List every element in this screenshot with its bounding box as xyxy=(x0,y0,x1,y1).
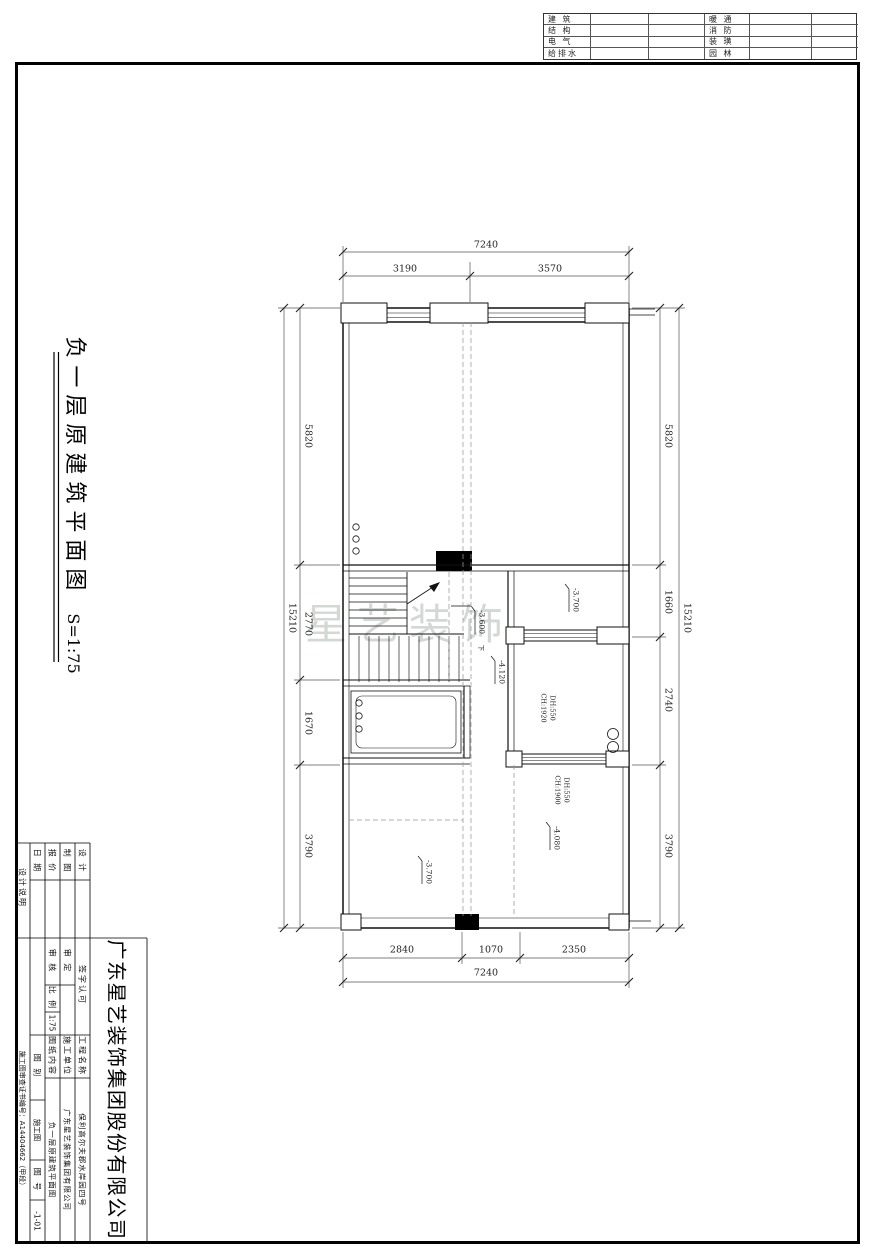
tb-cert-note: 施工图审查证书编号：A14404662（甲段） xyxy=(17,1051,27,1189)
dim-top-overall: 7240 xyxy=(474,240,498,251)
dim-bottom-seg-a: 2840 xyxy=(390,945,414,956)
elevation-label: -4.080 xyxy=(553,826,562,850)
consult-cell xyxy=(812,37,858,48)
dim-bottom-seg-b: 1070 xyxy=(479,945,503,956)
elevation-label: -3.700 xyxy=(425,860,434,884)
consult-cell xyxy=(750,25,812,36)
door-size-label: DH:550 CH:1920 xyxy=(540,693,557,722)
elevation-label: -3.600 xyxy=(478,610,487,634)
tb-type-value: 施工图 xyxy=(32,1119,43,1142)
dim-top-seg-b: 3570 xyxy=(538,264,562,275)
consult-label: 给排水 xyxy=(544,48,591,59)
dim-bottom-overall: 7240 xyxy=(474,968,498,979)
tb-side-note: 设计说明 xyxy=(17,868,28,908)
tb-design-label: 设 计 xyxy=(77,849,88,874)
consult-cell xyxy=(591,25,649,36)
door-ch: CH:1900 xyxy=(554,775,563,804)
tb-no-label: 图 号 xyxy=(32,1168,43,1193)
tb-project-value: 保利高尔夫郡水岸园四号 xyxy=(77,1113,88,1207)
consult-label: 装 璜 xyxy=(705,37,750,48)
tb-approve-label: 审 定 xyxy=(62,949,73,974)
dim-bottom-seg-c: 2350 xyxy=(562,945,586,956)
tb-scale-label: 比 例 xyxy=(47,986,58,1011)
tb-sign-label: 签字认可 xyxy=(77,965,88,1005)
consult-cell xyxy=(750,37,812,48)
drawing-sheet: 星艺装饰 建 筑 暖 通 结 构 消 防 电 气 装 璜 给排水 园 林 xyxy=(0,0,878,1254)
tb-no-value: -1-01 xyxy=(33,1211,42,1231)
elevation-label: -4.120 xyxy=(498,660,507,684)
tb-date-label: 日 期 xyxy=(32,849,43,874)
tb-scale-value: 1:75 xyxy=(48,1015,57,1032)
dim-left-overall: 15210 xyxy=(287,603,298,633)
tb-builder-value: 广东星艺装饰集团有限公司 xyxy=(62,1109,73,1211)
dim-right-seg-a: 5820 xyxy=(663,424,674,448)
door-dh: DH:550 xyxy=(562,775,571,804)
consult-label: 结 构 xyxy=(544,25,591,36)
tb-project-label: 工程名称 xyxy=(77,1036,88,1076)
consult-cell xyxy=(812,25,858,36)
tb-type-label: 图 别 xyxy=(32,1054,43,1079)
dim-left-seg-c: 1670 xyxy=(303,711,314,735)
consult-cell xyxy=(750,48,812,59)
consult-label: 电 气 xyxy=(544,37,591,48)
consult-cell xyxy=(649,25,705,36)
tb-check-label: 审 核 xyxy=(47,949,58,974)
consult-label: 消 防 xyxy=(705,25,750,36)
dim-right-seg-b: 1660 xyxy=(663,590,674,614)
consult-cell xyxy=(591,37,649,48)
consultant-table: 建 筑 暖 通 结 构 消 防 电 气 装 璜 给排水 园 林 xyxy=(543,13,857,60)
consult-label: 暖 通 xyxy=(705,14,750,25)
sheet-title-text: 负一层原建筑平面图 xyxy=(61,336,93,597)
tb-content-value: 负一层原建筑平面图 xyxy=(47,1122,58,1199)
consult-cell xyxy=(591,14,649,25)
consult-cell xyxy=(812,48,858,59)
dim-left-seg-b: 2770 xyxy=(303,612,314,636)
tb-draft-label: 制 图 xyxy=(62,849,73,874)
elevation-label: -3.700 xyxy=(572,588,581,612)
company-name: 广东星艺装饰集团股份有限公司 xyxy=(104,940,133,1241)
sheet-title-scale: S=1:75 xyxy=(64,613,83,673)
door-dh: DH:550 xyxy=(548,693,557,722)
consult-label: 建 筑 xyxy=(544,14,591,25)
consult-cell xyxy=(649,37,705,48)
consult-cell xyxy=(750,14,812,25)
consult-cell xyxy=(649,14,705,25)
dim-right-seg-c: 2740 xyxy=(663,688,674,712)
dim-left-seg-a: 5820 xyxy=(303,424,314,448)
stair-down-label: 下 xyxy=(477,645,487,652)
dim-right-seg-d: 3790 xyxy=(663,834,674,858)
consult-cell xyxy=(812,14,858,25)
tb-builder-label: 施工单位 xyxy=(62,1036,73,1076)
sheet-title: 负一层原建筑平面图 S=1:75 xyxy=(61,336,93,673)
tb-quote-label: 报 价 xyxy=(47,849,58,874)
consult-label: 园 林 xyxy=(705,48,750,59)
dim-top-seg-a: 3190 xyxy=(393,264,417,275)
door-size-label: DH:550 CH:1900 xyxy=(554,775,571,804)
door-ch: CH:1920 xyxy=(540,693,549,722)
tb-content-label: 图纸内容 xyxy=(47,1036,58,1076)
consult-cell xyxy=(591,48,649,59)
dim-left-seg-d: 3790 xyxy=(303,834,314,858)
dim-right-overall: 15210 xyxy=(682,603,693,633)
consult-cell xyxy=(649,48,705,59)
